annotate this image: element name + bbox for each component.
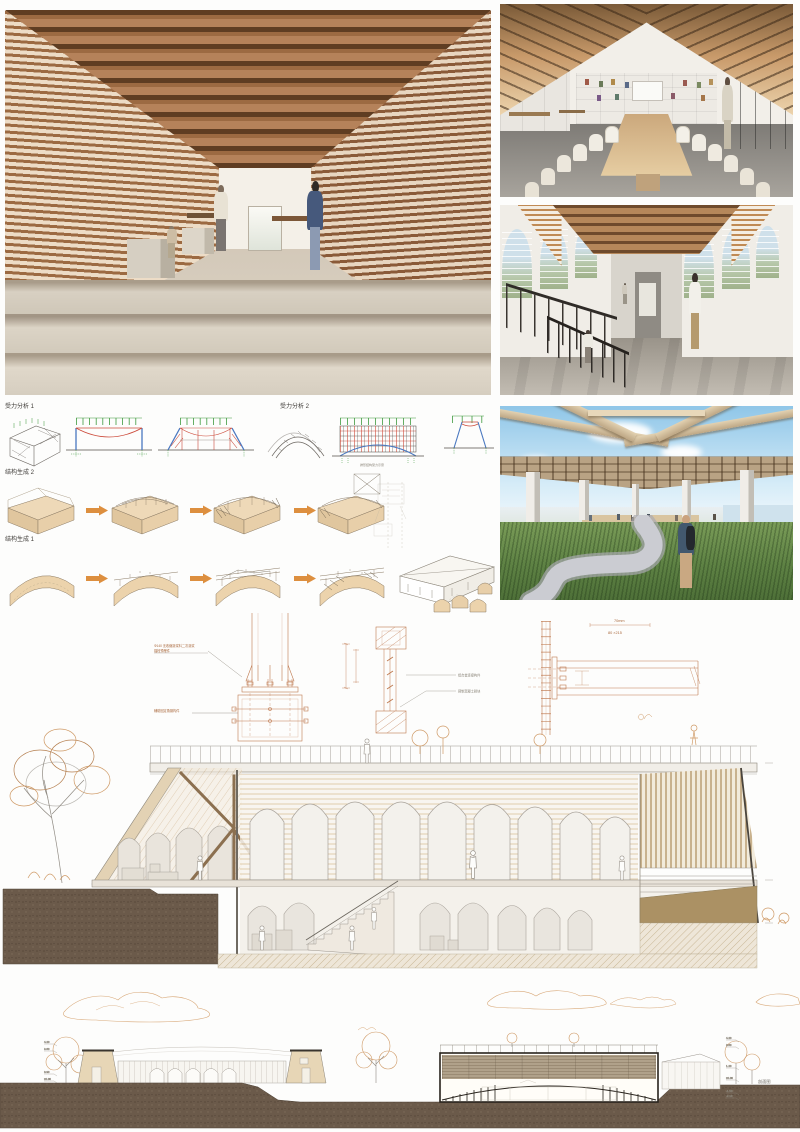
upper-arches <box>250 802 630 880</box>
arrow <box>190 574 212 584</box>
callout-angle-steel: 辅助固定角钢构件 <box>154 708 180 713</box>
chairs-right <box>676 126 690 143</box>
arch-opening <box>756 226 778 279</box>
arrow <box>294 506 316 516</box>
hall-step <box>5 353 491 395</box>
hall-step <box>5 314 491 353</box>
svg-text:4.20: 4.20 <box>44 1040 50 1044</box>
svg-text:-1.50: -1.50 <box>726 1089 733 1093</box>
ground-slab <box>92 880 757 887</box>
render-arched-corridor <box>500 205 793 395</box>
svg-text:-2.10: -2.10 <box>726 1094 733 1098</box>
person-figure <box>305 181 324 270</box>
building-axon <box>374 482 494 612</box>
presentation-board: 受力分析 1 受力分析 2 结构生成 2 结构生成 1 拱形结构受力示意 <box>0 0 800 1132</box>
structure-diagram-panel: 受力分析 1 受力分析 2 结构生成 2 结构生成 1 拱形结构受力示意 <box>0 398 498 613</box>
foundation-hatch <box>218 954 757 968</box>
end-opening <box>639 283 656 316</box>
label-force-analysis-1: 受力分析 1 <box>5 402 35 410</box>
callout-grout: Φ140 无收缩灌浆料二次灌浆 <box>154 643 195 648</box>
frame-force-diagram-1 <box>66 418 152 457</box>
generation2-step3 <box>214 496 280 534</box>
right-small-elevation <box>662 1054 720 1089</box>
person-figure <box>165 226 178 259</box>
person-figure <box>721 77 734 148</box>
dim-70mm: 70mm <box>614 619 625 623</box>
section-box <box>440 1045 658 1102</box>
side-table <box>559 110 585 113</box>
section-tree <box>10 729 110 883</box>
column <box>632 484 640 517</box>
person-figure <box>622 283 628 304</box>
section-label: 剖面图 <box>758 1078 771 1085</box>
hall-back-opening <box>248 206 282 250</box>
detail-mullion-callouts: 铝合金连接构件 预制混凝土砌块 <box>400 673 481 708</box>
ground-soil <box>0 1083 800 1128</box>
arrow <box>86 574 108 584</box>
svg-text:±0.00: ±0.00 <box>44 1077 51 1081</box>
label-generation-2: 结构生成 2 <box>5 468 35 476</box>
right-slat-zone <box>640 768 758 954</box>
hall-step <box>5 280 491 315</box>
clouds <box>63 991 800 1030</box>
detail-column-base-callouts: Φ140 无收缩灌浆料二次灌浆 锚栓预埋件 辅助固定角钢构件 <box>154 643 242 713</box>
svg-text:0.90: 0.90 <box>44 1070 50 1074</box>
render-reading-room <box>500 4 793 197</box>
arch-grid-force-diagram <box>332 418 424 463</box>
generation1-step1 <box>10 576 74 606</box>
generation2-step2 <box>112 496 178 534</box>
dim-80x215: 80 ×215 <box>608 631 622 635</box>
person-figure <box>212 185 229 250</box>
frame-force-diagram-2 <box>158 418 254 457</box>
svg-text:3.60: 3.60 <box>44 1047 50 1051</box>
arrow <box>86 506 108 516</box>
soil-mass <box>3 889 218 964</box>
canopy-beam <box>588 410 705 416</box>
child-figure <box>676 515 697 589</box>
roof-figures-plants <box>364 725 698 763</box>
concrete-bench <box>182 228 214 255</box>
label-force-analysis-2: 受力分析 2 <box>280 402 310 410</box>
svg-text:4.20: 4.20 <box>726 1036 732 1040</box>
label-arch-caption: 拱形结构受力示意 <box>360 462 384 467</box>
books <box>585 79 589 85</box>
render-main-hall <box>5 10 491 395</box>
person-figure <box>688 273 703 349</box>
svg-text:1.20: 1.20 <box>726 1064 732 1068</box>
generation1-step2 <box>114 571 178 606</box>
table-pedestal <box>636 174 659 191</box>
reading-window <box>632 81 663 100</box>
elevation-drawing: 4.20 3.60 0.90 ±0.00 -1.50 -2.10 <box>0 988 800 1132</box>
callout-precast: 预制混凝土砌块 <box>458 689 481 694</box>
render-waterfront-canopy <box>500 406 793 600</box>
building-section-drawing <box>0 718 800 986</box>
generation2-step1 <box>8 488 74 534</box>
pebble-path <box>500 515 793 600</box>
generation1-step3 <box>216 568 280 606</box>
generation1-step4 <box>320 568 384 606</box>
left-elevation-building <box>78 1047 326 1083</box>
truss-axon-diagram <box>10 418 60 466</box>
right-landscape <box>762 763 789 924</box>
callout-aluminium: 铝合金连接构件 <box>458 673 481 678</box>
arch-axon-diagram <box>268 431 324 458</box>
chairs-left <box>605 126 619 143</box>
small-frame-diagram <box>444 416 494 454</box>
arrow <box>190 506 212 516</box>
arrow <box>294 574 316 584</box>
callout-anchor: 锚栓预埋件 <box>154 648 171 653</box>
person-figure <box>582 330 594 362</box>
side-table <box>509 112 550 116</box>
label-generation-1: 结构生成 1 <box>5 535 35 543</box>
svg-text:±0.00: ±0.00 <box>726 1076 733 1080</box>
svg-text:3.60: 3.60 <box>726 1043 732 1047</box>
